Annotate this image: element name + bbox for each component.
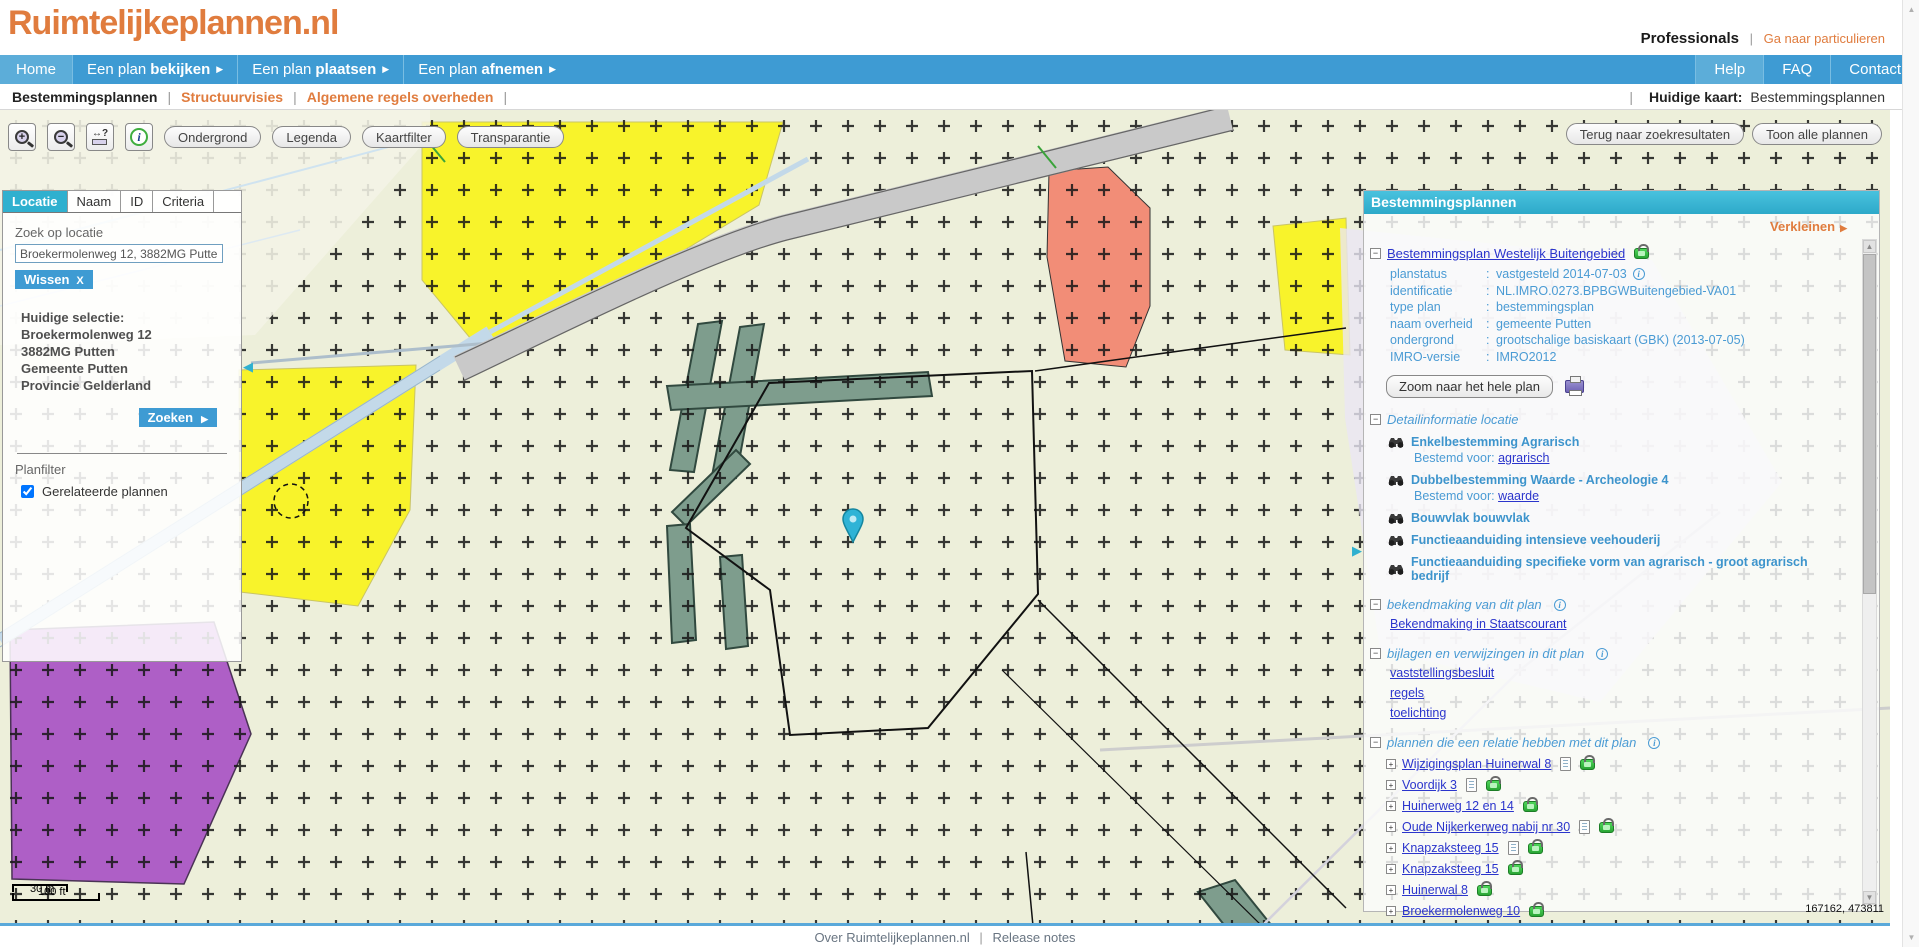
info-icon: i	[130, 128, 148, 146]
collapse-node-icon[interactable]: −	[1370, 414, 1381, 425]
tab-algemene-regels[interactable]: Algemene regels overheden	[307, 89, 494, 105]
feature-title: Bouwvlak bouwvlak	[1411, 511, 1530, 525]
binoculars-icon	[1388, 564, 1404, 575]
expand-node-icon[interactable]: +	[1386, 780, 1396, 790]
colon: :	[1486, 283, 1496, 300]
section-attachments: − bijlagen en verwijzingen in dit plan i	[1370, 646, 1849, 661]
detail-value: bestemmingsplan	[1496, 299, 1594, 316]
page-scrollbar: ▲ ▼	[1902, 0, 1919, 947]
nav-home[interactable]: Home	[0, 55, 72, 84]
tab-locatie[interactable]: Locatie	[3, 191, 68, 212]
expand-node-icon[interactable]: +	[1386, 906, 1396, 916]
search-button[interactable]: Zoeken▶	[139, 408, 217, 427]
lock-icon	[1634, 248, 1649, 259]
feature-item: Bouwvlak bouwvlak	[1388, 511, 1849, 525]
selection-line: Broekermolenweg 12	[21, 326, 229, 343]
detail-label: type plan	[1390, 299, 1486, 316]
nav-plan-afnemen[interactable]: Een plan afnemen▶	[403, 55, 570, 84]
detail-label: planstatus	[1390, 266, 1486, 283]
audience-switch-link[interactable]: Ga naar particulieren	[1764, 31, 1885, 46]
map-viewport[interactable]: + − ↔? i Ondergrond Legenda Kaartfilter …	[0, 110, 1890, 926]
document-icon[interactable]	[1508, 841, 1519, 855]
legenda-button[interactable]: Legenda	[272, 126, 351, 148]
plan-details: planstatus:vastgesteld 2014-07-03i ident…	[1390, 266, 1849, 365]
print-icon[interactable]	[1565, 380, 1584, 393]
map-scale: 30 m 100 ft	[12, 884, 100, 901]
zoom-in-button[interactable]: +	[8, 123, 36, 151]
feature-sub-label: Bestemd voor:	[1414, 451, 1495, 465]
feature-sub-link[interactable]: waarde	[1498, 489, 1539, 503]
collapse-right-panel-handle[interactable]: ▶	[1352, 543, 1362, 559]
related-plan-row: +Knapzaksteeg 15	[1386, 841, 1849, 855]
site-logo[interactable]: Ruimtelijkeplannen.nl	[8, 4, 338, 43]
section-announcement: − bekendmaking van dit plan i	[1370, 597, 1849, 612]
location-search-input[interactable]	[15, 244, 223, 263]
detail-value: IMRO2012	[1496, 349, 1556, 366]
tab-structuurvisies[interactable]: Structuurvisies	[181, 89, 283, 105]
announcement-link[interactable]: Bekendmaking in Staatscourant	[1390, 616, 1849, 632]
lock-icon	[1528, 843, 1543, 854]
separator: |	[1750, 31, 1753, 46]
page-footer: Over Ruimtelijkeplannen.nl | Release not…	[0, 929, 1890, 947]
page-header: Ruimtelijkeplannen.nl Professionals | Ga…	[0, 0, 1919, 55]
related-plan-row: +Wijzigingsplan Huinerwal 8	[1386, 757, 1849, 771]
tab-bestemmingsplannen[interactable]: Bestemmingsplannen	[12, 89, 157, 105]
lock-icon	[1529, 906, 1544, 917]
colon: :	[1486, 316, 1496, 333]
colon: :	[1486, 332, 1496, 349]
selection-line: 3882MG Putten	[21, 343, 229, 360]
clear-search-button[interactable]: WissenX	[15, 270, 93, 289]
ondergrond-button[interactable]: Ondergrond	[164, 126, 261, 148]
tab-naam[interactable]: Naam	[68, 191, 122, 212]
chevron-right-icon: ▶	[1840, 223, 1847, 233]
expand-node-icon[interactable]: +	[1386, 843, 1396, 853]
attachment-link[interactable]: toelichting	[1390, 705, 1849, 721]
lock-icon	[1580, 759, 1595, 770]
scale-imperial: 100 ft	[12, 893, 100, 901]
lock-icon	[1477, 885, 1492, 896]
kaartfilter-button[interactable]: Kaartfilter	[362, 126, 446, 148]
related-plan-link[interactable]: Knapzaksteeg 15	[1402, 862, 1499, 876]
map-toolbar-right: Terug naar zoekresultaten Toon alle plan…	[1566, 123, 1882, 145]
related-plan-link[interactable]: Wijzigingsplan Huinerwal 8	[1402, 757, 1551, 771]
separator: |	[293, 89, 297, 105]
selection-line: Gemeente Putten	[21, 360, 229, 377]
document-icon[interactable]	[1523, 925, 1534, 926]
zoom-to-plan-button[interactable]: Zoom naar het hele plan	[1386, 375, 1553, 398]
search-panel: Locatie Naam ID Criteria Zoek op locatie…	[2, 190, 242, 662]
current-map-value: Bestemmingsplannen	[1750, 89, 1885, 105]
footer-release-notes-link[interactable]: Release notes	[992, 930, 1075, 945]
zoom-out-button[interactable]: −	[47, 123, 75, 151]
related-plan-row: +Broekermolenweg 10	[1386, 904, 1849, 918]
collapse-node-icon[interactable]: −	[1370, 248, 1381, 259]
related-plan-row: +Huinerweg 12 en 14	[1386, 799, 1849, 813]
expand-node-icon[interactable]: +	[1386, 864, 1396, 874]
detail-value: NL.IMRO.0273.BPBGWBuitengebied-VA01	[1496, 283, 1736, 300]
info-icon[interactable]: i	[1633, 268, 1645, 280]
show-all-plans-button[interactable]: Toon alle plannen	[1752, 123, 1882, 145]
scroll-up-arrow[interactable]: ▲	[1863, 240, 1876, 253]
related-plan-link[interactable]: Oude Nijkerkerweg nabij nr 30	[1402, 820, 1570, 834]
close-icon: X	[76, 275, 83, 287]
nav-label-bold: plaatsen	[315, 61, 376, 78]
detail-label: identificatie	[1390, 283, 1486, 300]
scroll-down-arrow[interactable]: ▼	[1905, 931, 1918, 944]
back-to-results-button[interactable]: Terug naar zoekresultaten	[1566, 123, 1744, 145]
feature-item: Enkelbestemming Agrarisch	[1388, 435, 1849, 449]
nav-plan-bekijken[interactable]: Een plan bekijken▶	[72, 55, 237, 84]
feature-title: Functieaanduiding specifieke vorm van ag…	[1411, 555, 1849, 583]
feature-sub-link[interactable]: agrarisch	[1498, 451, 1549, 465]
info-icon[interactable]: i	[1596, 648, 1608, 660]
lock-icon	[1508, 864, 1523, 875]
separator: |	[167, 89, 171, 105]
nav-home-label: Home	[16, 61, 56, 78]
plan-info-panel: Bestemmingsplannen Verkleinen▶ − Bestemm…	[1363, 190, 1880, 912]
feature-item: Functieaanduiding intensieve veehouderij	[1388, 533, 1849, 547]
transparantie-button[interactable]: Transparantie	[457, 126, 565, 148]
feature-title: Enkelbestemming Agrarisch	[1411, 435, 1579, 449]
panel-scrollbar: ▲ ▼	[1862, 239, 1877, 905]
expand-node-icon[interactable]: +	[1386, 759, 1396, 769]
section-related-plans: − plannen die een relatie hebben met dit…	[1370, 735, 1849, 750]
selection-title: Huidige selectie:	[21, 309, 229, 326]
feature-sub-label: Bestemd voor:	[1414, 489, 1495, 503]
colon: :	[1486, 299, 1496, 316]
tab-criteria[interactable]: Criteria	[153, 191, 214, 212]
separator: |	[979, 930, 982, 945]
scroll-up-arrow[interactable]: ▲	[1905, 3, 1918, 16]
feature-title: Dubbelbestemming Waarde - Archeologie 4	[1411, 473, 1668, 487]
related-plan-row: +Knapzaksteeg 15	[1386, 862, 1849, 876]
expand-node-icon[interactable]: +	[1386, 885, 1396, 895]
lock-icon	[1486, 780, 1501, 791]
tab-id[interactable]: ID	[121, 191, 153, 212]
document-icon[interactable]	[1560, 757, 1571, 771]
section-detail-info: − Detailinformatie locatie	[1370, 412, 1849, 427]
document-icon[interactable]	[1466, 778, 1477, 792]
detail-label: ondergrond	[1390, 332, 1486, 349]
expand-node-icon[interactable]: +	[1386, 801, 1396, 811]
detail-value: vastgesteld 2014-07-03	[1496, 266, 1627, 283]
separator: |	[503, 89, 507, 105]
detail-value: gemeente Putten	[1496, 316, 1591, 333]
related-plan-row: +Voordijk 3	[1386, 778, 1849, 792]
related-plan-link[interactable]: Huinerweg 12 en 14	[1402, 799, 1514, 813]
detail-label: naam overheid	[1390, 316, 1486, 333]
info-button[interactable]: i	[125, 123, 153, 151]
info-icon[interactable]: i	[1554, 599, 1566, 611]
main-navbar: Home Een plan bekijken▶ Een plan plaatse…	[0, 55, 1919, 84]
footer-about-link[interactable]: Over Ruimtelijkeplannen.nl	[814, 930, 969, 945]
nav-help[interactable]: Help	[1695, 55, 1763, 84]
related-plan-link[interactable]: Broekermolenweg 10	[1402, 904, 1520, 918]
plan-panel-title: Bestemmingsplannen	[1364, 191, 1879, 214]
nav-label: Een plan	[252, 61, 311, 78]
search-label: Zoek op locatie	[15, 225, 229, 240]
chevron-right-icon: ▶	[549, 64, 556, 75]
expand-node-icon[interactable]: +	[1386, 822, 1396, 832]
feature-item: Functieaanduiding specifieke vorm van ag…	[1388, 555, 1849, 583]
related-plan-link[interactable]: Knapzaksteeg 15	[1402, 841, 1499, 855]
scrollbar-thumb[interactable]	[1863, 254, 1876, 594]
nav-label: Een plan	[418, 61, 477, 78]
detail-label: IMRO-versie	[1390, 349, 1486, 366]
document-icon[interactable]	[1579, 820, 1590, 834]
info-icon[interactable]: i	[1648, 737, 1660, 749]
chevron-right-icon: ▶	[382, 64, 389, 75]
binoculars-icon	[1388, 437, 1404, 448]
detail-value: grootschalige basiskaart (GBK) (2013-07-…	[1496, 332, 1745, 349]
nav-faq[interactable]: FAQ	[1763, 55, 1830, 84]
magnifier-minus-icon: −	[54, 130, 68, 144]
colon: :	[1486, 349, 1496, 366]
map-toolbar: + − ↔? i Ondergrond Legenda Kaartfilter …	[8, 123, 564, 151]
feature-item: Dubbelbestemming Waarde - Archeologie 4	[1388, 473, 1849, 487]
separator: |	[1629, 89, 1633, 105]
related-plan-link[interactable]: Huinerweg 12 en 14	[1402, 925, 1514, 926]
measure-icon: ↔?	[92, 129, 108, 145]
magnifier-plus-icon: +	[15, 130, 29, 144]
nav-label: Een plan	[87, 61, 146, 78]
nav-label-bold: bekijken	[150, 61, 210, 78]
related-plans-checkbox-label: Gerelateerde plannen	[42, 484, 168, 499]
map-type-bar: Bestemmingsplannen | Structuurvisies | A…	[0, 84, 1919, 110]
audience-label: Professionals	[1641, 30, 1739, 47]
binoculars-icon	[1388, 475, 1404, 486]
lock-icon	[1599, 822, 1614, 833]
collapse-panel-link[interactable]: Verkleinen▶	[1364, 214, 1879, 236]
planfilter-title: Planfilter	[15, 462, 229, 477]
chevron-right-icon: ▶	[201, 414, 208, 424]
current-selection: Huidige selectie: Broekermolenweg 12 388…	[21, 309, 229, 394]
measure-button[interactable]: ↔?	[86, 123, 114, 151]
related-plan-row: +Oude Nijkerkerweg nabij nr 30	[1386, 820, 1849, 834]
selection-line: Provincie Gelderland	[21, 377, 229, 394]
binoculars-icon	[1388, 513, 1404, 524]
collapse-node-icon[interactable]: −	[1370, 599, 1381, 610]
colon: :	[1486, 266, 1496, 283]
related-plan-link[interactable]: Voordijk 3	[1402, 778, 1457, 792]
related-plan-row: +Huinerwal 8	[1386, 883, 1849, 897]
mouse-coordinates: 167162, 473811	[1805, 903, 1884, 915]
attachment-link[interactable]: regels	[1390, 685, 1849, 701]
chevron-right-icon: ▶	[216, 64, 223, 75]
search-tabs: Locatie Naam ID Criteria	[3, 191, 241, 213]
nav-label-bold: afnemen	[481, 61, 543, 78]
collapse-node-icon[interactable]: −	[1370, 737, 1381, 748]
related-plan-link[interactable]: Huinerwal 8	[1402, 883, 1468, 897]
attachment-link[interactable]: vaststellingsbesluit	[1390, 665, 1849, 681]
related-plan-row: +Huinerweg 12 en 14	[1386, 925, 1849, 926]
plan-title-link[interactable]: Bestemmingsplan Westelijk Buitengebied	[1387, 246, 1625, 261]
related-plans-checkbox[interactable]	[21, 485, 34, 498]
lock-icon	[1523, 801, 1538, 812]
binoculars-icon	[1388, 535, 1404, 546]
collapse-left-panel-handle[interactable]: ◀	[243, 359, 253, 375]
collapse-node-icon[interactable]: −	[1370, 648, 1381, 659]
feature-title: Functieaanduiding intensieve veehouderij	[1411, 533, 1660, 547]
divider	[17, 453, 227, 454]
current-map-label: Huidige kaart:	[1649, 89, 1742, 105]
nav-plan-plaatsen[interactable]: Een plan plaatsen▶	[237, 55, 403, 84]
